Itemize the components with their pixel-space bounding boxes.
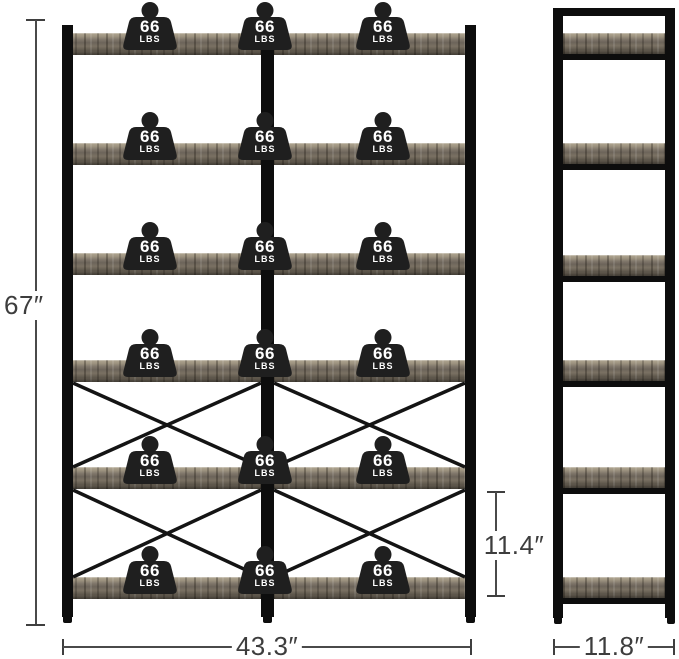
weight-value: 66 <box>122 345 178 362</box>
side-shelf-1 <box>563 33 665 54</box>
side-foot-right <box>667 618 675 624</box>
weight-unit: LBS <box>355 35 411 44</box>
weight-value: 66 <box>237 238 293 255</box>
weight-capacity-badge: 66LBS <box>122 546 178 596</box>
weight-capacity-badge: 66LBS <box>237 2 293 52</box>
weight-capacity-badge: 66LBS <box>355 329 411 379</box>
weight-value: 66 <box>122 562 178 579</box>
weight-capacity-badge: 66LBS <box>355 112 411 162</box>
product-dimension-diagram: 66LBS 66LBS 66LBS 66LBS 66LBS 66LBS 66LB… <box>0 0 679 659</box>
dimension-tick <box>673 639 675 655</box>
weight-capacity-badge: 66LBS <box>237 222 293 272</box>
weight-capacity-badge: 66LBS <box>237 436 293 486</box>
front-foot-right <box>466 617 475 623</box>
side-shelf-support-5 <box>553 488 675 494</box>
front-foot-center <box>263 617 272 623</box>
side-shelf-support-6 <box>553 598 675 604</box>
weight-unit: LBS <box>237 579 293 588</box>
weight-capacity-badge: 66LBS <box>355 2 411 52</box>
front-post-left <box>62 25 73 617</box>
weight-value: 66 <box>122 238 178 255</box>
weight-unit: LBS <box>122 469 178 478</box>
shelf-spacing-dimension-label: 11.4″ <box>480 531 548 560</box>
dimension-tick <box>487 595 505 597</box>
weight-value: 66 <box>122 18 178 35</box>
weight-unit: LBS <box>355 255 411 264</box>
weight-capacity-badge: 66LBS <box>355 546 411 596</box>
weight-unit: LBS <box>237 145 293 154</box>
side-shelf-support-4 <box>553 381 675 387</box>
weight-unit: LBS <box>237 255 293 264</box>
weight-unit: LBS <box>122 362 178 371</box>
weight-unit: LBS <box>122 35 178 44</box>
dimension-line <box>35 20 37 625</box>
weight-value: 66 <box>237 452 293 469</box>
dimension-tick <box>470 639 472 655</box>
width-dimension-label: 43.3″ <box>232 632 302 659</box>
height-dimension-label: 67″ <box>0 291 48 320</box>
weight-unit: LBS <box>122 579 178 588</box>
side-shelf-4 <box>563 360 665 381</box>
weight-unit: LBS <box>355 579 411 588</box>
side-top-bar <box>553 8 675 16</box>
front-foot-left <box>63 617 72 623</box>
weight-capacity-badge: 66LBS <box>122 2 178 52</box>
weight-unit: LBS <box>237 35 293 44</box>
side-shelf-6 <box>563 577 665 598</box>
weight-unit: LBS <box>237 362 293 371</box>
weight-value: 66 <box>355 345 411 362</box>
weight-capacity-badge: 66LBS <box>355 436 411 486</box>
weight-value: 66 <box>355 128 411 145</box>
side-shelf-3 <box>563 255 665 276</box>
weight-value: 66 <box>355 18 411 35</box>
weight-capacity-badge: 66LBS <box>122 329 178 379</box>
weight-value: 66 <box>355 238 411 255</box>
side-post-left <box>553 8 563 618</box>
weight-capacity-badge: 66LBS <box>122 112 178 162</box>
weight-unit: LBS <box>122 255 178 264</box>
weight-value: 66 <box>237 128 293 145</box>
weight-capacity-badge: 66LBS <box>122 436 178 486</box>
weight-value: 66 <box>355 562 411 579</box>
depth-dimension-label: 11.8″ <box>580 632 648 659</box>
weight-value: 66 <box>122 452 178 469</box>
weight-unit: LBS <box>355 145 411 154</box>
weight-unit: LBS <box>355 362 411 371</box>
side-shelf-support-3 <box>553 276 675 282</box>
weight-capacity-badge: 66LBS <box>122 222 178 272</box>
weight-value: 66 <box>355 452 411 469</box>
weight-unit: LBS <box>355 469 411 478</box>
weight-value: 66 <box>237 345 293 362</box>
side-shelf-2 <box>563 143 665 164</box>
weight-value: 66 <box>237 18 293 35</box>
weight-value: 66 <box>237 562 293 579</box>
weight-unit: LBS <box>237 469 293 478</box>
dimension-tick <box>26 624 45 626</box>
weight-capacity-badge: 66LBS <box>237 112 293 162</box>
weight-capacity-badge: 66LBS <box>237 329 293 379</box>
weight-capacity-badge: 66LBS <box>355 222 411 272</box>
weight-capacity-badge: 66LBS <box>237 546 293 596</box>
side-shelf-5 <box>563 467 665 488</box>
weight-value: 66 <box>122 128 178 145</box>
side-foot-left <box>554 618 562 624</box>
weight-unit: LBS <box>122 145 178 154</box>
side-shelf-support-2 <box>553 164 675 170</box>
front-post-right <box>465 25 476 617</box>
side-post-right <box>665 8 675 618</box>
side-shelf-support-1 <box>553 54 675 60</box>
